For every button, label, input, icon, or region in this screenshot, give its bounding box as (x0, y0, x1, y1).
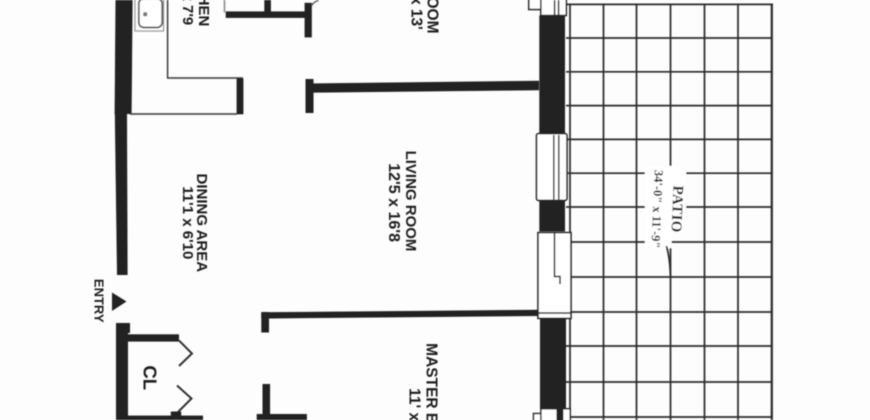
svg-text:11'1 x 6'10: 11'1 x 6'10 (179, 186, 196, 259)
svg-text:MASTER BEDROOM: MASTER BEDROOM (423, 343, 440, 420)
svg-text:CL: CL (140, 365, 161, 390)
svg-text:11' x 17'2: 11' x 17'2 (406, 388, 423, 420)
svg-text:PATIO: PATIO (667, 185, 685, 233)
svg-text:LIVING ROOM: LIVING ROOM (402, 151, 419, 252)
svg-text:KITCHEN: KITCHEN (195, 0, 212, 26)
svg-text:13'2 x 13': 13'2 x 13' (408, 0, 425, 30)
svg-text:BEDROOM: BEDROOM (424, 0, 441, 33)
svg-text:12'5 x 16'8: 12'5 x 16'8 (385, 163, 402, 242)
svg-text:ENTRY: ENTRY (92, 279, 107, 323)
svg-text:13'6 x 7'9: 13'6 x 7'9 (179, 0, 196, 25)
